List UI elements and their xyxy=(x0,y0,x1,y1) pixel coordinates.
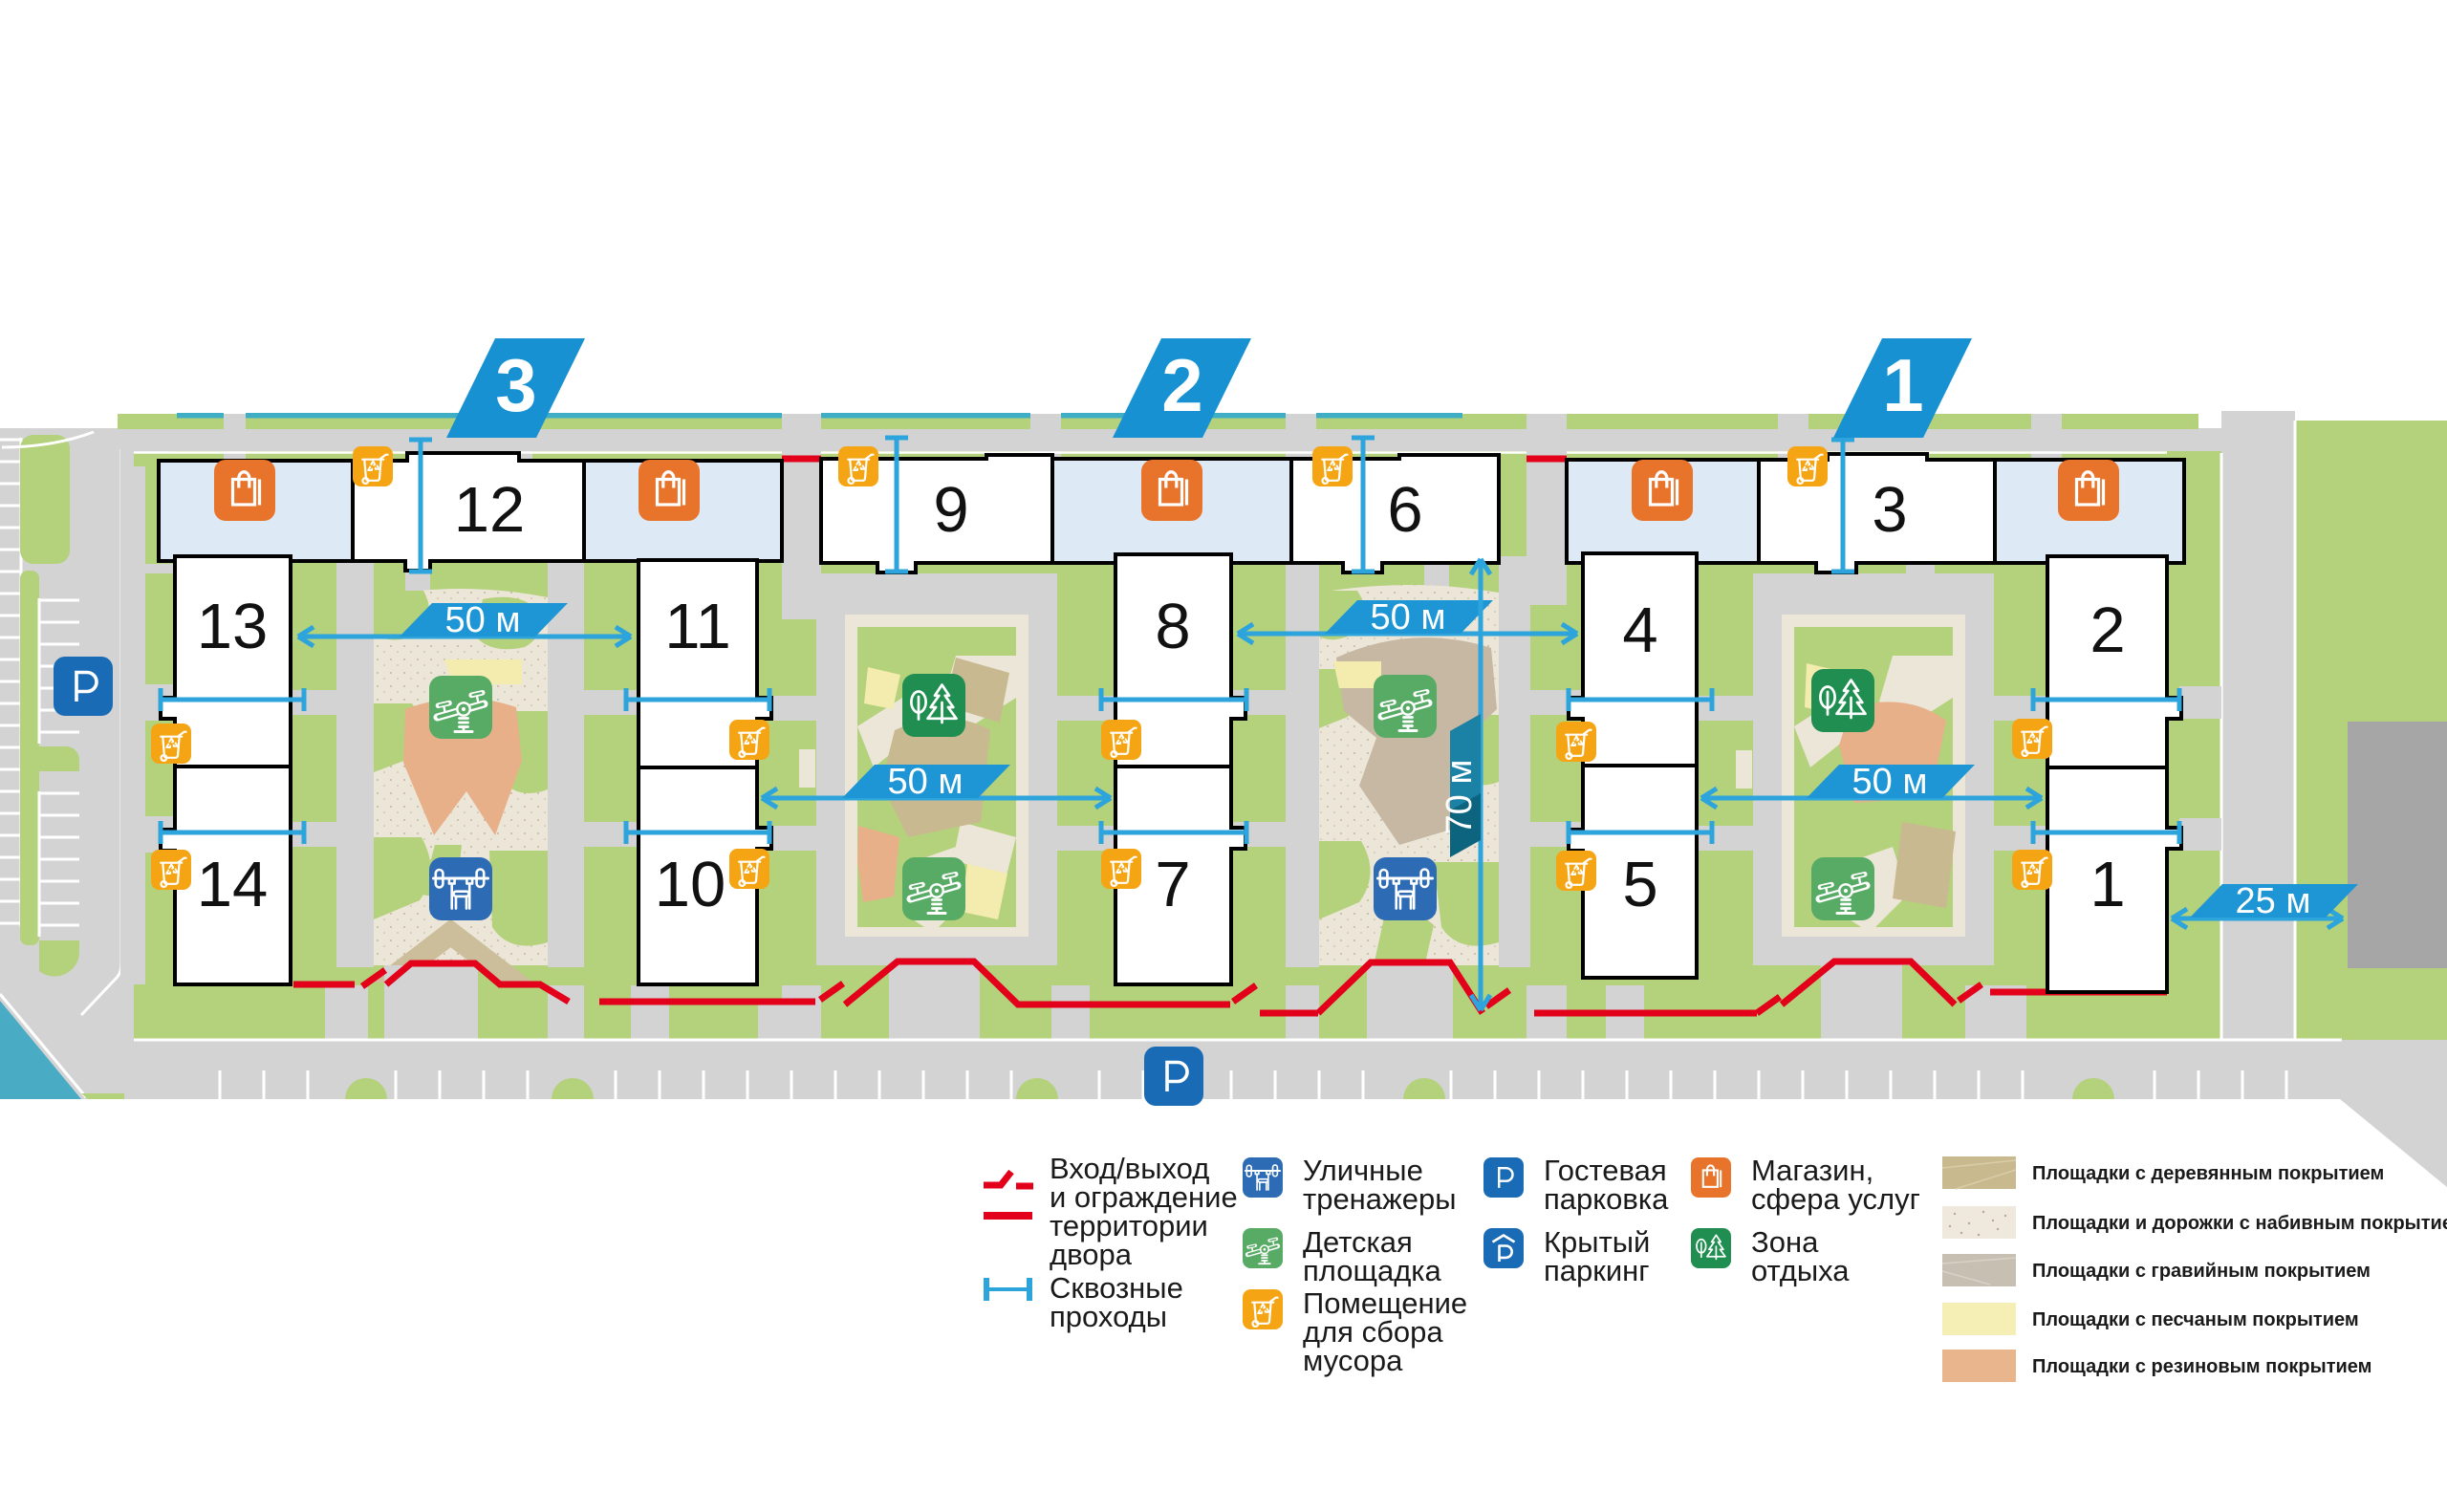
svg-text:9: 9 xyxy=(933,474,968,546)
svg-text:50 м: 50 м xyxy=(888,762,964,802)
svg-text:тренажеры: тренажеры xyxy=(1303,1182,1457,1216)
svg-text:13: 13 xyxy=(197,591,269,662)
svg-text:8: 8 xyxy=(1155,591,1190,662)
svg-text:2: 2 xyxy=(2090,594,2125,666)
svg-text:сфера услуг: сфера услуг xyxy=(1751,1182,1920,1216)
svg-text:проходы: проходы xyxy=(1050,1300,1167,1333)
svg-text:Площадки с резиновым покрытием: Площадки с резиновым покрытием xyxy=(2032,1356,2371,1377)
svg-text:2: 2 xyxy=(1161,343,1202,427)
svg-text:Площадки с песчаным покрытием: Площадки с песчаным покрытием xyxy=(2032,1309,2359,1330)
svg-text:50 м: 50 м xyxy=(1852,762,1928,802)
svg-text:паркинг: паркинг xyxy=(1544,1254,1650,1287)
svg-text:парковка: парковка xyxy=(1544,1182,1669,1216)
svg-text:12: 12 xyxy=(454,474,526,546)
svg-text:Площадки и дорожки с набивным: Площадки и дорожки с набивным покрытием xyxy=(2032,1213,2447,1234)
svg-text:Площадки с деревянным покрытие: Площадки с деревянным покрытием xyxy=(2032,1163,2384,1184)
svg-text:50 м: 50 м xyxy=(445,600,521,640)
svg-text:мусора: мусора xyxy=(1303,1344,1403,1377)
svg-text:двора: двора xyxy=(1050,1238,1133,1271)
svg-text:3: 3 xyxy=(495,343,536,427)
svg-text:5: 5 xyxy=(1622,849,1657,920)
svg-text:6: 6 xyxy=(1387,474,1422,546)
svg-text:7: 7 xyxy=(1155,849,1190,920)
svg-text:1: 1 xyxy=(2090,849,2125,920)
svg-text:50 м: 50 м xyxy=(1371,597,1446,637)
svg-text:25 м: 25 м xyxy=(2236,881,2311,921)
svg-text:1: 1 xyxy=(1882,343,1923,427)
svg-text:70 м: 70 м xyxy=(1440,760,1480,835)
svg-text:4: 4 xyxy=(1622,594,1657,666)
svg-text:14: 14 xyxy=(197,849,269,920)
svg-text:Площадки с гравийным покрытием: Площадки с гравийным покрытием xyxy=(2032,1261,2371,1282)
svg-text:3: 3 xyxy=(1872,474,1907,546)
svg-text:10: 10 xyxy=(655,849,726,920)
svg-text:отдыха: отдыха xyxy=(1751,1254,1850,1287)
svg-text:11: 11 xyxy=(664,591,731,662)
svg-text:площадка: площадка xyxy=(1303,1254,1442,1287)
